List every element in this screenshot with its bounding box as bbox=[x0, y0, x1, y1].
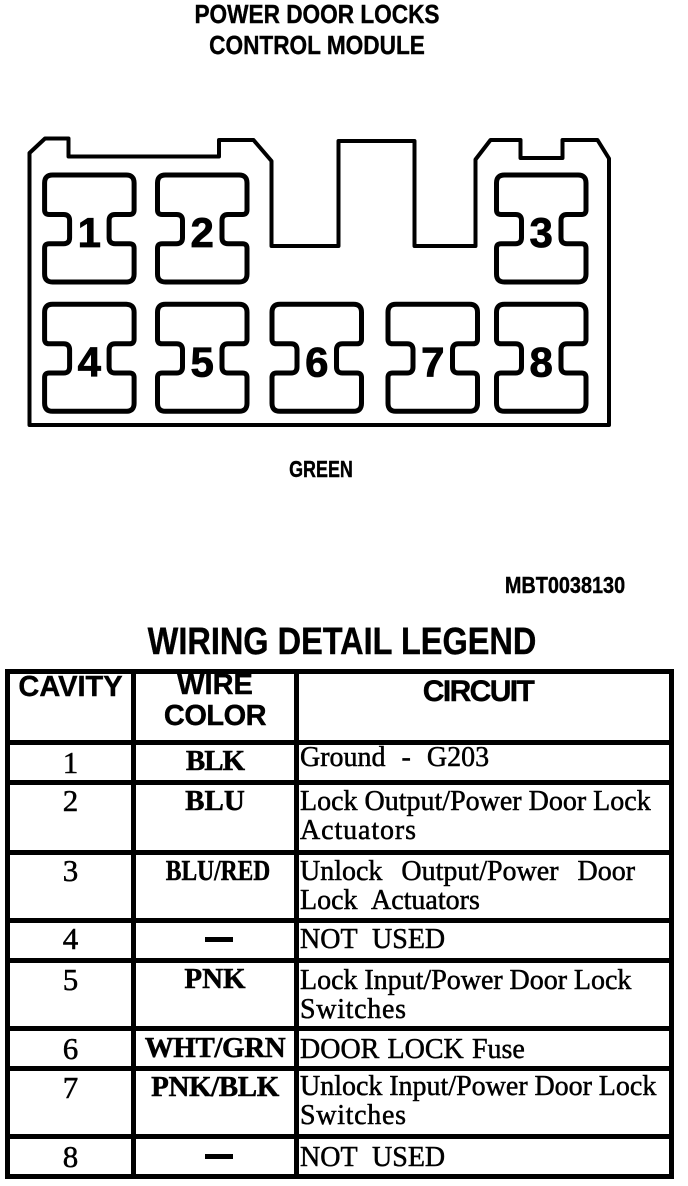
svg-text:5: 5 bbox=[191, 338, 214, 385]
svg-text:1: 1 bbox=[78, 209, 101, 256]
svg-text:3: 3 bbox=[530, 209, 553, 256]
svg-text:6: 6 bbox=[305, 338, 328, 385]
svg-text:8: 8 bbox=[530, 338, 553, 385]
svg-text:7: 7 bbox=[421, 338, 444, 385]
svg-text:4: 4 bbox=[78, 338, 102, 385]
svg-text:2: 2 bbox=[191, 209, 214, 256]
